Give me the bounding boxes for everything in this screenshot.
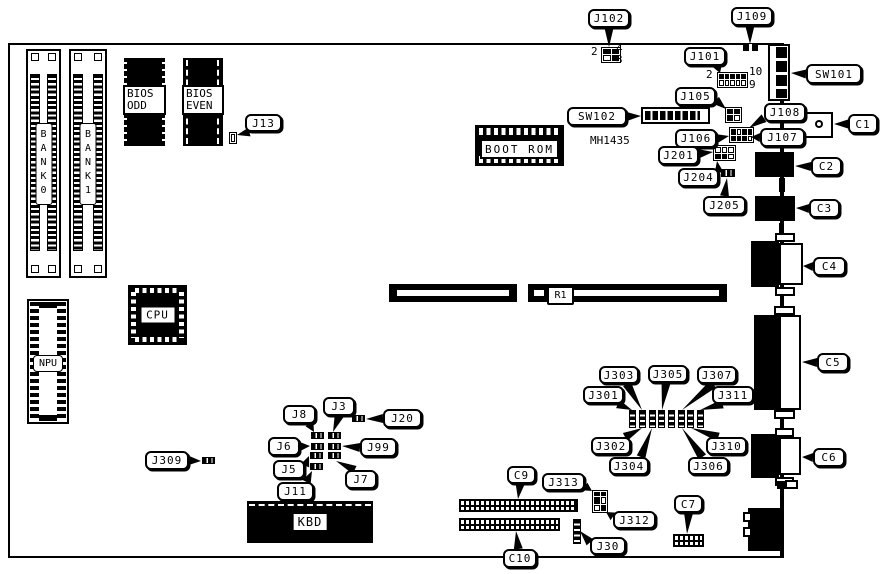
j106-j107-block-cell <box>742 129 747 135</box>
j204-jumper <box>721 169 735 177</box>
j101-header-cell <box>725 74 730 79</box>
j106-j107-block-cell <box>742 136 747 142</box>
j11-jumper <box>310 463 323 470</box>
npu-socket: NPU <box>27 299 69 424</box>
c5-tab-bottom <box>774 410 795 419</box>
kbd-din-bump-1 <box>743 512 752 522</box>
edge-nub-1 <box>779 178 785 192</box>
j5-jumper <box>310 452 323 459</box>
cpu-label: CPU <box>140 307 175 324</box>
j8-jumper <box>311 432 324 439</box>
j101-header-cell <box>730 80 735 87</box>
callout-j205: J205 <box>703 196 746 215</box>
j201-block-cell <box>715 154 721 160</box>
j3xx-jumper-4 <box>658 410 665 428</box>
callout-c7: C7 <box>674 495 703 513</box>
cpu-socket: CPU <box>128 285 187 345</box>
sw101-dip-switch <box>768 44 790 101</box>
cpu-pins-left <box>131 292 136 338</box>
callout-j11: J11 <box>277 482 314 501</box>
bank0-label: BANK0 <box>35 123 52 205</box>
j313-j312-block-cell <box>594 505 600 511</box>
callout-j13: J13 <box>245 114 282 132</box>
j3xx-jumper-6 <box>678 410 685 428</box>
j201-block-cell <box>728 154 734 160</box>
bank1-pad-tr <box>94 53 102 61</box>
callout-j307: J307 <box>697 366 737 384</box>
leader-sw101 <box>791 70 806 79</box>
bank0-pad-tl <box>31 53 39 61</box>
bios-odd-chip: BIOS ODD <box>124 58 165 146</box>
j3xx-jumper-3 <box>649 410 656 428</box>
j102-pin-2: 2 <box>591 45 598 58</box>
callout-j6: J6 <box>268 437 300 456</box>
callout-j312: J312 <box>613 511 656 529</box>
j106-j107-block-cell <box>737 136 742 142</box>
callout-j313: J313 <box>542 473 585 491</box>
j106-j107-block <box>729 127 754 143</box>
bios-even-chip: BIOS EVEN <box>183 58 223 146</box>
bios-even-label: BIOS EVEN <box>182 85 224 115</box>
simm-bank-0: BANK0 <box>26 49 61 278</box>
j201-block-cell <box>715 147 721 153</box>
cpu-pins-bottom <box>135 337 180 342</box>
callout-j305: J305 <box>648 365 688 383</box>
j3xx-jumper-2 <box>639 410 646 428</box>
c7-header <box>673 534 704 547</box>
bank1-label: BANK1 <box>80 123 97 205</box>
callout-sw102: SW102 <box>567 107 627 126</box>
bios-odd-label: BIOS ODD <box>123 85 166 115</box>
kbd-dashed-line <box>249 504 371 506</box>
j105-block-cell <box>734 115 740 122</box>
callout-j201: J201 <box>658 146 699 165</box>
j20-jumper <box>352 415 365 422</box>
j309-jumper <box>202 457 215 464</box>
j30-strip <box>573 519 581 544</box>
j3xx-jumper-5 <box>668 410 675 428</box>
c4-tab-top <box>775 233 795 242</box>
kbd-din-bump-2 <box>743 527 752 537</box>
c4-face <box>779 243 803 285</box>
callout-j302: J302 <box>591 437 631 455</box>
j13-part <box>229 132 237 144</box>
callout-c10: C10 <box>503 549 537 568</box>
callout-j30: J30 <box>590 537 626 555</box>
j105-block <box>725 107 742 123</box>
j105-block-cell <box>727 115 733 122</box>
j106-j107-block-cell <box>731 129 736 135</box>
callout-j304: J304 <box>609 457 649 475</box>
j201-block-cell <box>728 147 734 153</box>
callout-c4: C4 <box>813 257 846 276</box>
j102-block-cell <box>603 49 611 54</box>
j201-block-cell <box>722 147 728 153</box>
sw102-dip-switch <box>641 107 710 124</box>
callout-j107: J107 <box>760 128 805 147</box>
j106-j107-block-cell <box>748 136 753 142</box>
slot-right-stripe-b <box>573 290 719 296</box>
leader-c2 <box>795 162 811 171</box>
callout-j109: J109 <box>731 7 773 26</box>
cpu-pins-top <box>135 288 180 293</box>
j7-jumper <box>328 452 341 459</box>
j101-header-cell <box>736 80 741 87</box>
callout-j102: J102 <box>588 9 630 28</box>
edge-nub-2 <box>779 223 784 233</box>
kbd-label: KBD <box>294 514 327 530</box>
j101-header-cell <box>741 80 746 87</box>
j313-j312-block-cell <box>594 497 600 503</box>
callout-j310: J310 <box>706 437 747 455</box>
j101-pin-2: 2 <box>706 68 713 81</box>
leader-c6 <box>802 453 813 462</box>
sw102-part-number: MH1435 <box>590 134 630 147</box>
callout-j8: J8 <box>283 405 316 424</box>
callout-j7: J7 <box>345 470 377 489</box>
bios-even-line2: EVEN <box>186 100 213 112</box>
j13-part-cell <box>231 134 235 142</box>
j3xx-jumper-8 <box>697 410 704 428</box>
j102-block-cell <box>603 55 611 62</box>
leader-c4 <box>803 262 813 271</box>
c5-tab-top <box>774 306 795 315</box>
motherboard-layout-diagram: BANK0 BANK1 BIOS ODD BIOS EVEN BOOT ROM <box>0 0 881 574</box>
j3-jumper <box>328 432 341 439</box>
leader-c1 <box>834 120 848 129</box>
j99-jumper <box>328 443 341 450</box>
j201-block-cell <box>722 154 728 160</box>
callout-c5: C5 <box>817 353 849 372</box>
callout-j5: J5 <box>273 460 305 479</box>
j101-pin-10: 10 <box>749 65 762 78</box>
leader-c3 <box>796 204 809 213</box>
callout-c1: C1 <box>848 114 878 134</box>
j3xx-jumper-1 <box>629 410 636 428</box>
j106-j107-block-cell <box>737 129 742 135</box>
j313-j312-block <box>592 490 608 513</box>
bank0-pad-br <box>48 265 56 273</box>
callout-c6: C6 <box>813 448 845 467</box>
callout-j309: J309 <box>145 451 189 470</box>
callout-j3: J3 <box>323 397 355 416</box>
c5-body <box>754 315 779 410</box>
j6-jumper <box>311 443 324 450</box>
j3xx-jumper-7 <box>687 410 694 428</box>
j109-block <box>743 44 758 51</box>
leader-c5 <box>802 358 817 367</box>
callout-j105: J105 <box>675 87 716 106</box>
bios-odd-line2: ODD <box>127 100 147 112</box>
j313-j312-block-cell <box>601 505 607 511</box>
j101-header-cell <box>719 80 724 87</box>
j101-header-cell <box>736 74 741 79</box>
r1-label: R1 <box>547 286 574 305</box>
slot-left-stripe <box>397 290 509 296</box>
npu-label: NPU <box>33 355 63 372</box>
c3-body <box>755 196 795 221</box>
callout-j303: J303 <box>599 366 639 384</box>
c10-header <box>459 518 560 531</box>
j105-block-cell <box>734 109 740 114</box>
c4-body <box>751 241 779 287</box>
c1-hole <box>815 120 823 128</box>
callout-j99: J99 <box>360 438 397 457</box>
j313-j312-block-cell <box>594 492 600 496</box>
j201-block <box>713 145 736 161</box>
c6-tab-top <box>775 428 794 437</box>
bank1-pad-tl <box>74 53 82 61</box>
c5-face <box>779 315 801 410</box>
c6-face <box>779 437 801 475</box>
bank0-pad-tr <box>48 53 56 61</box>
callout-j108: J108 <box>764 103 806 122</box>
simm-bank-1: BANK1 <box>69 49 107 278</box>
cpu-pins-right <box>179 292 184 338</box>
j106-j107-block-cell <box>748 129 753 135</box>
edge-part-outline <box>785 480 798 489</box>
j101-header-cell <box>725 80 730 87</box>
j102-pin-3: 3 <box>616 53 623 66</box>
slot-right-stripe-a <box>534 290 544 296</box>
j101-header-cell <box>719 74 724 79</box>
c2-body <box>755 152 794 177</box>
kbd-controller: KBD <box>247 501 373 543</box>
sw102-switch-segments <box>645 111 700 120</box>
callout-j101: J101 <box>684 47 726 66</box>
j313-j312-block-cell <box>601 492 607 496</box>
callout-sw101: SW101 <box>806 64 862 84</box>
callout-j306: J306 <box>688 457 729 475</box>
bank0-pad-bl <box>31 265 39 273</box>
j106-j107-block-cell <box>731 136 736 142</box>
sw101-switch-segments <box>776 47 787 98</box>
c6-body <box>751 434 779 478</box>
c9-header <box>459 499 578 512</box>
boot-rom-label: BOOT ROM <box>480 139 559 159</box>
j313-j312-block-cell <box>601 497 607 503</box>
j105-block-cell <box>727 109 733 114</box>
c4-tab-bottom <box>775 287 795 296</box>
leader-j109 <box>745 26 754 44</box>
callout-c9: C9 <box>507 466 536 484</box>
callout-j301: J301 <box>583 386 624 404</box>
callout-j204: J204 <box>678 168 719 187</box>
boot-rom-chip: BOOT ROM <box>475 125 564 166</box>
callout-j20: J20 <box>383 409 422 428</box>
kbd-din-body <box>748 508 783 551</box>
j101-header-cell <box>741 74 746 79</box>
callout-j311: J311 <box>712 386 754 404</box>
callout-c2: C2 <box>811 157 842 176</box>
bank1-pad-br <box>94 265 102 273</box>
callout-c3: C3 <box>809 199 840 218</box>
j101-header-cell <box>730 74 735 79</box>
j101-pin-9: 9 <box>749 78 756 91</box>
j101-header <box>717 72 748 88</box>
bank1-pad-bl <box>74 265 82 273</box>
boot-rom-pins-top <box>479 128 560 135</box>
